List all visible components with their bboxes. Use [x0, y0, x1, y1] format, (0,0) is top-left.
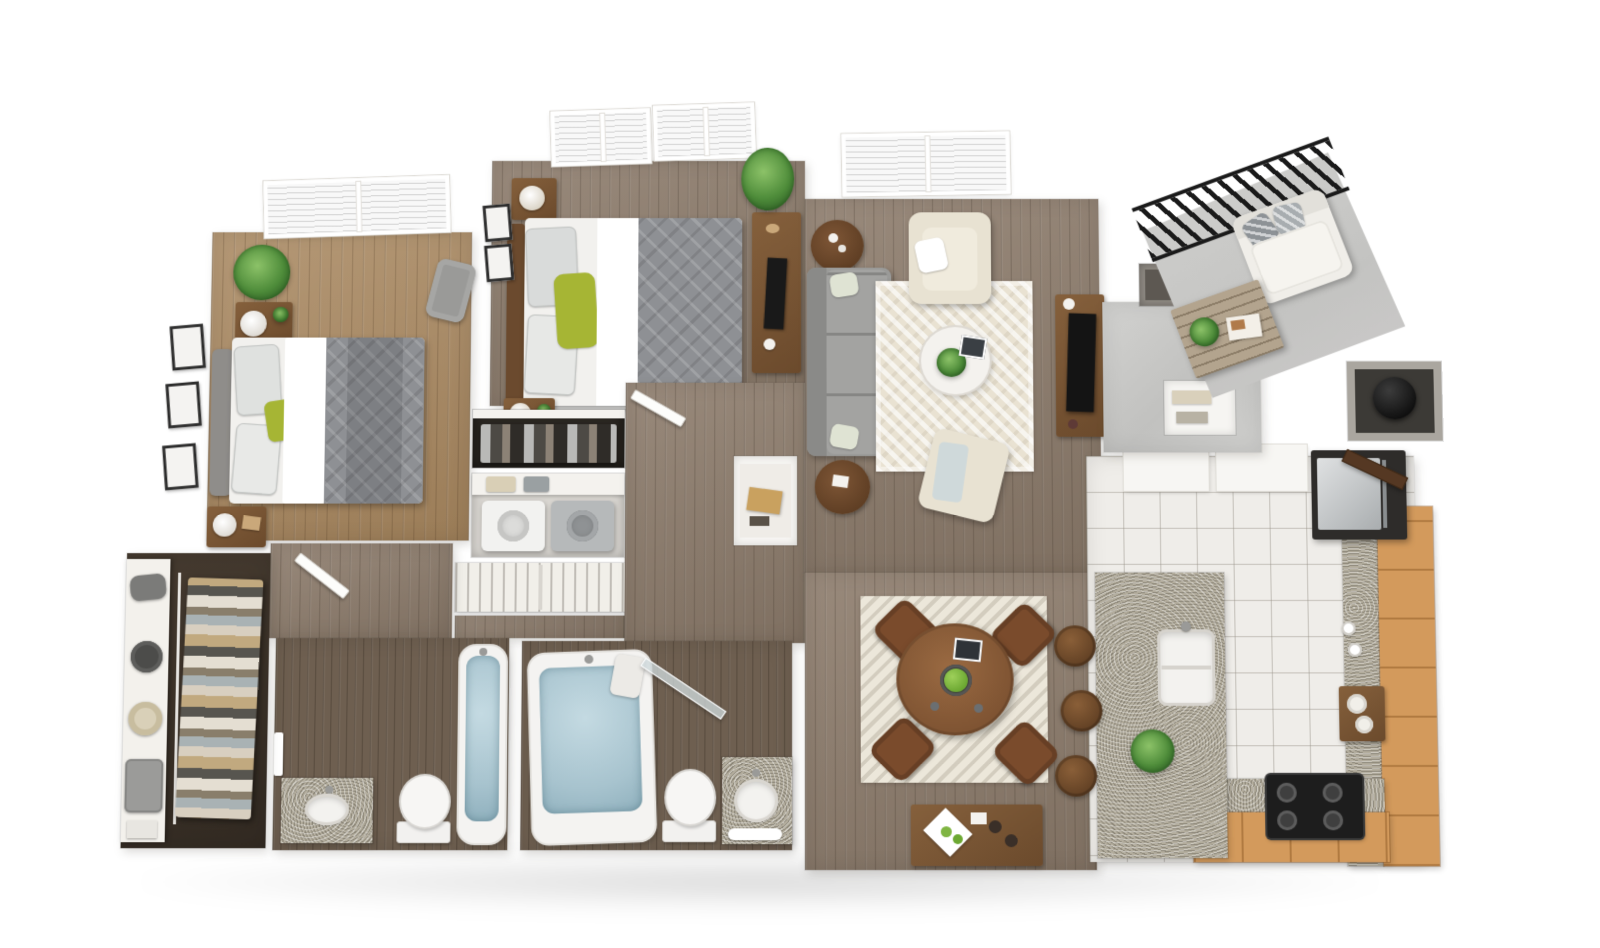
bedroom2-window [653, 103, 756, 161]
pantry-shelf-items [1176, 412, 1208, 424]
flower-vase [1063, 298, 1075, 309]
bar-stool [1060, 690, 1102, 731]
tall-plant [741, 148, 794, 211]
toilet [656, 769, 718, 844]
burner [1277, 783, 1297, 803]
dryer-door [567, 510, 599, 541]
closet-shelving [121, 559, 171, 842]
hanging-suits [480, 424, 616, 463]
cooktop [1267, 775, 1364, 838]
decor-item [1068, 419, 1078, 429]
round-sink [734, 779, 778, 823]
duffel-bag [129, 573, 167, 602]
large-bathtub [529, 651, 656, 844]
accent-pillow-green [553, 272, 599, 349]
bed-duvet [324, 338, 425, 504]
wall-art-frame [170, 324, 206, 371]
pattern-pillow [829, 271, 860, 298]
basket-lamp [519, 186, 545, 211]
master-bed [229, 338, 425, 504]
sideboard [911, 805, 1043, 867]
potted-plant [233, 245, 291, 300]
rolled-towels [728, 828, 782, 840]
wall-art-frame [484, 244, 514, 282]
tablet [953, 638, 983, 662]
laundry-closet [471, 474, 624, 558]
wall-art-frame [162, 443, 199, 490]
cup [974, 704, 983, 713]
washer-lid [497, 510, 529, 541]
table-lamp [213, 513, 237, 536]
hanging-clothes [175, 577, 264, 819]
folded-towels [609, 653, 646, 699]
candles [828, 233, 838, 243]
glass-door-panel [640, 658, 726, 720]
bedroom2-closet [472, 410, 624, 468]
table-plant [1185, 314, 1223, 351]
vanity [722, 757, 792, 844]
magazine [1226, 313, 1263, 340]
nightstand [206, 506, 266, 547]
faucet [752, 769, 760, 777]
cup [1005, 834, 1018, 847]
mug [1348, 643, 1362, 657]
master-bedroom-window [263, 175, 450, 238]
door-seam [538, 565, 542, 610]
bed-duvet [638, 218, 743, 406]
hall-niche-shelf [734, 456, 797, 545]
small-plant [273, 307, 289, 322]
upper-counter-slab [1123, 446, 1208, 491]
toilet-bowl [664, 769, 716, 826]
candles [838, 245, 846, 253]
sofa-back [807, 268, 827, 456]
sink-divider [1162, 666, 1212, 670]
desk-item [750, 516, 770, 526]
cup [930, 702, 939, 711]
dining-table [896, 623, 1014, 735]
tub-faucet [479, 648, 487, 656]
bowl [1355, 716, 1373, 734]
faucet [325, 786, 333, 794]
wall-art-frame [165, 381, 201, 428]
double-sink [1157, 629, 1216, 706]
decor-tray [832, 474, 849, 488]
cup [989, 820, 1002, 833]
floor-plan-stage [0, 0, 1600, 948]
dryer [551, 501, 615, 552]
sun-hat [128, 702, 163, 735]
room-walk-in-closet [121, 553, 271, 848]
bowl-of-apples [940, 665, 972, 696]
living-room-window [841, 131, 1010, 196]
balcony [1127, 142, 1415, 406]
wall-art-frame [483, 204, 513, 242]
washer [481, 501, 545, 552]
vanity [280, 778, 373, 843]
magazine-print [1230, 319, 1245, 330]
closet-shelf [473, 410, 625, 419]
bar-stool [1055, 755, 1097, 797]
island-plant [1130, 729, 1174, 772]
room-living-room [805, 199, 1102, 573]
counter-tray-with-bowls [1339, 686, 1386, 741]
room-dining-area [805, 573, 1097, 870]
room-bathroom-2 [520, 641, 792, 850]
apartment-floor-plan [0, 29, 1600, 948]
linen-closet-louvered-doors [455, 563, 626, 612]
duvet-pattern-band [346, 338, 404, 504]
bed-sheet [282, 338, 326, 504]
table-lamp [240, 311, 267, 337]
tv-console [1055, 294, 1106, 436]
green-apple [953, 834, 963, 844]
mug [1342, 621, 1356, 635]
hall-strip [455, 616, 627, 639]
faucet [1181, 621, 1191, 631]
book [746, 487, 783, 515]
burner [1323, 810, 1343, 830]
throw-blanket [932, 441, 969, 503]
round-side-table [815, 460, 870, 514]
burner [1277, 810, 1297, 830]
coffee-table-book [959, 335, 988, 360]
bedroom2-window [550, 108, 651, 166]
armchair [909, 212, 992, 304]
bar-stool [1054, 625, 1096, 666]
kitchen-island [1095, 573, 1228, 858]
green-apple [941, 826, 952, 837]
coffee-table [921, 327, 990, 394]
room-master-bedroom [207, 232, 473, 540]
green-apples [944, 669, 968, 693]
flat-tv [1066, 313, 1096, 412]
corner-chair [424, 257, 477, 324]
bed-sheet [596, 218, 638, 406]
room-bathroom-1 [272, 638, 509, 850]
decor-bowl [766, 224, 780, 234]
round-side-table [811, 220, 864, 272]
oval-sink [305, 794, 349, 826]
media-desk [752, 212, 801, 373]
flower-vase [764, 339, 776, 351]
tv-monitor [764, 258, 787, 330]
tub-water [465, 656, 501, 822]
napkin-stack [971, 812, 987, 824]
pattern-pillow [829, 423, 860, 451]
toilet [392, 774, 453, 843]
storage-box [127, 820, 157, 838]
suitcase [124, 759, 163, 812]
storage-basket [486, 476, 516, 492]
bedroom2-bed [523, 218, 742, 406]
books [242, 515, 262, 531]
towel-bar [274, 732, 284, 775]
bathtub [458, 646, 506, 843]
hat-box [130, 641, 162, 672]
burner [1322, 783, 1342, 803]
bowl [1347, 694, 1367, 714]
nightstand [511, 178, 556, 220]
storage-basket [523, 476, 549, 492]
tub-faucet [584, 655, 593, 664]
